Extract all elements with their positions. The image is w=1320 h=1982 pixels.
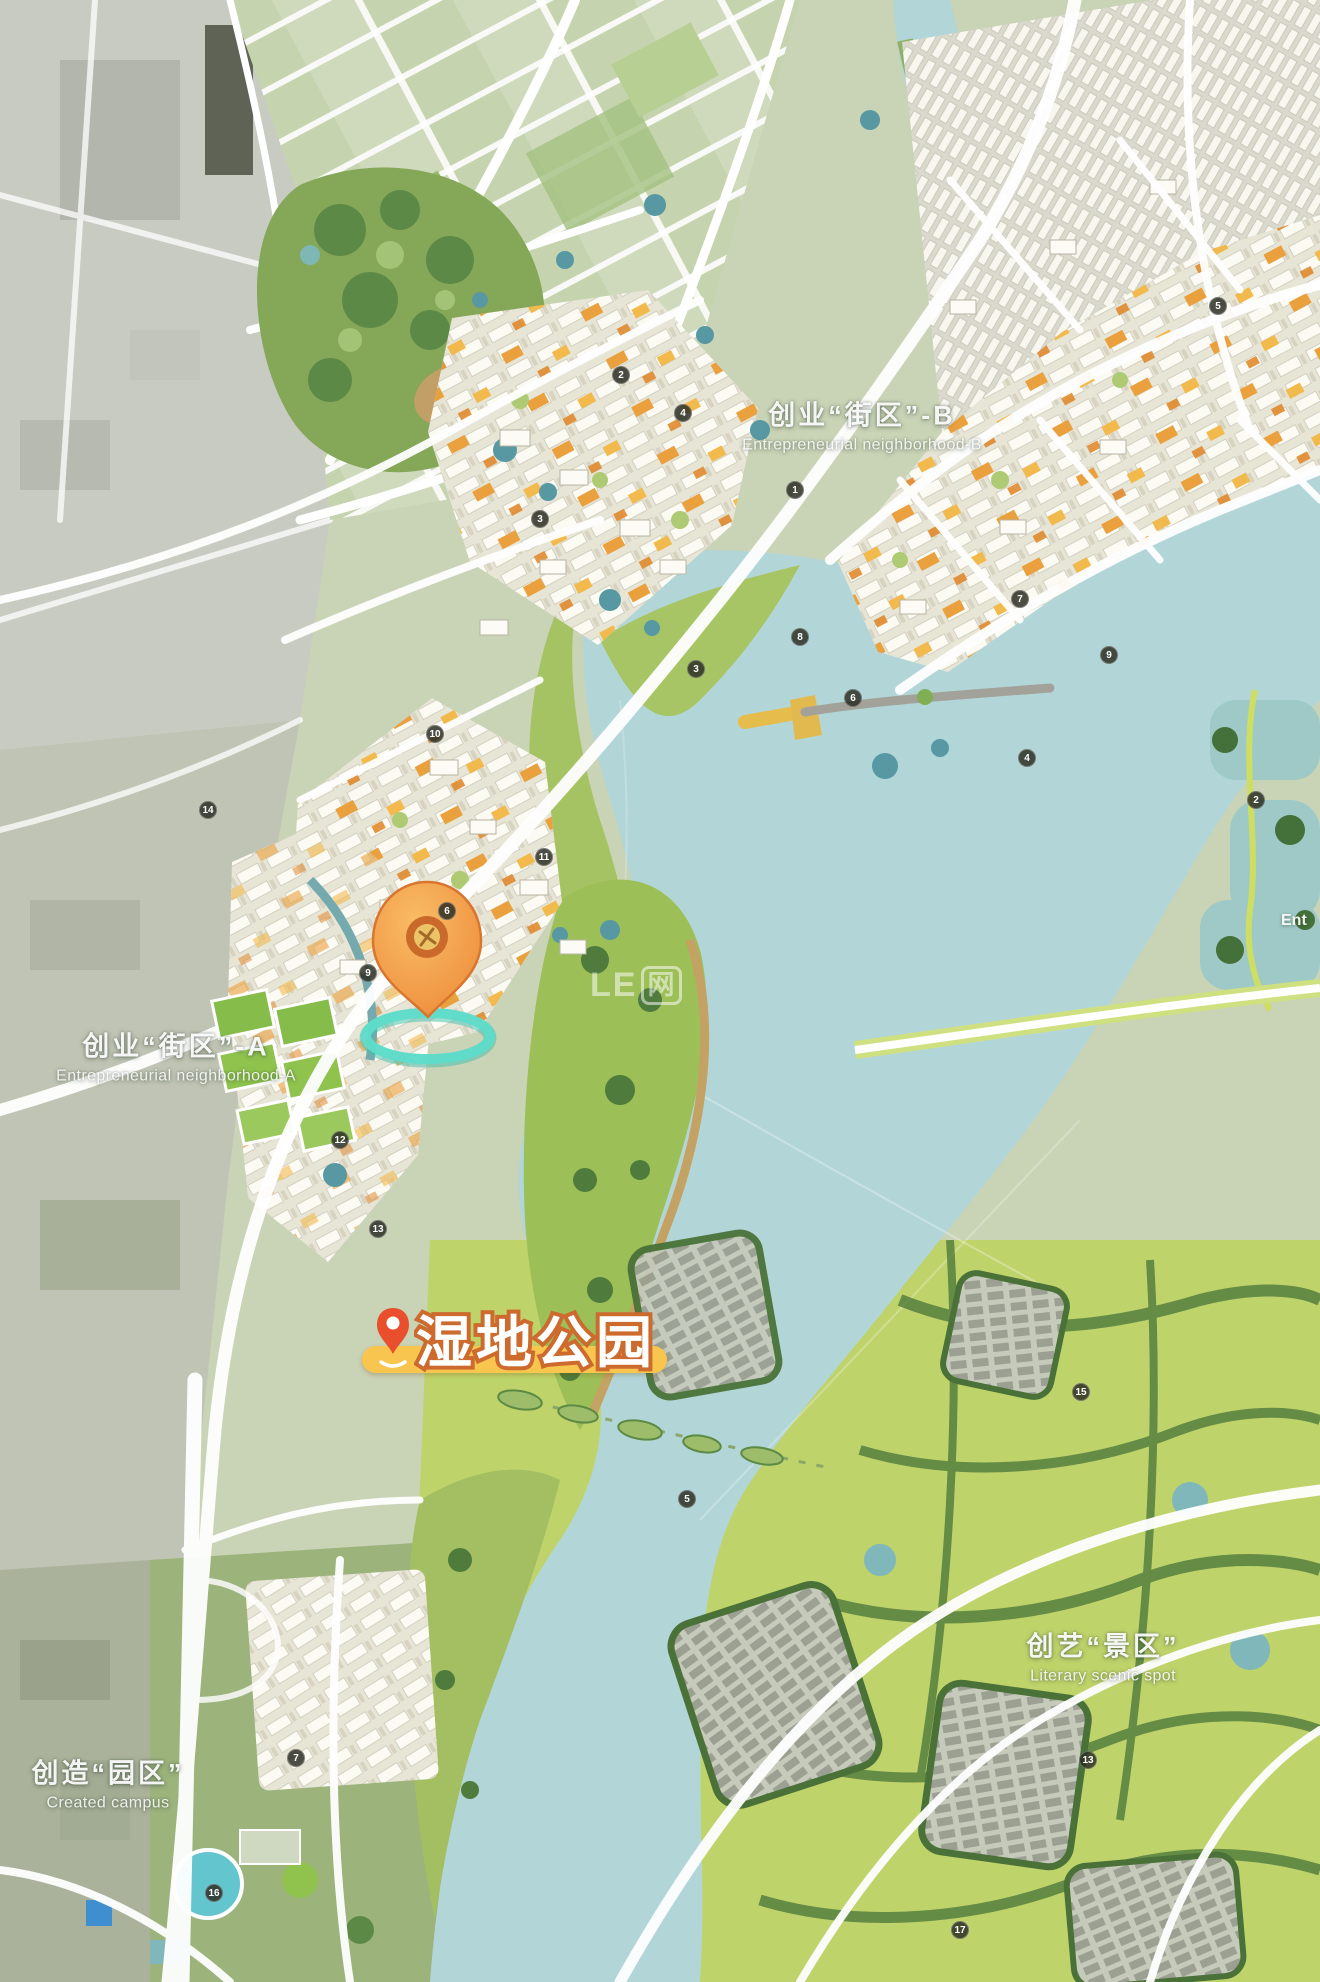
numbered-marker: 13 [1079, 1751, 1097, 1769]
district-label-campus: 创造“园区”Created campus [32, 1752, 185, 1813]
numbered-marker: 16 [205, 1884, 223, 1902]
numbered-marker: 5 [1209, 297, 1227, 315]
district-label-en: Literary scenic spot [1027, 1668, 1180, 1686]
poi-tag-text: 湿地公园 [416, 1311, 656, 1374]
district-label-zh: 创业“街区”-B [742, 394, 982, 433]
numbered-marker: 3 [687, 660, 705, 678]
numbered-marker: 8 [791, 628, 809, 646]
numbered-marker: 5 [678, 1490, 696, 1508]
numbered-marker: 9 [359, 964, 377, 982]
district-label-zh: 创业“街区”-A [56, 1025, 296, 1064]
watermark-latin: LE [590, 966, 637, 1005]
numbered-marker: 15 [1072, 1383, 1090, 1401]
numbered-marker: 13 [369, 1220, 387, 1238]
numbered-marker: 7 [287, 1749, 305, 1767]
numbered-marker: 11 [535, 848, 553, 866]
watermark: LE 网 [590, 966, 682, 1005]
numbered-marker: 7 [1011, 590, 1029, 608]
numbered-marker: 4 [674, 404, 692, 422]
poi-tag: 湿地公园 [362, 1298, 692, 1384]
district-label-zh: 创造“园区” [32, 1752, 185, 1791]
numbered-marker: 3 [531, 510, 549, 528]
numbered-marker: 2 [612, 366, 630, 384]
district-label-district-b: 创业“街区”-BEntrepreneurial neighborhood-B [742, 394, 982, 455]
watermark-cjk: 网 [641, 966, 682, 1004]
numbered-marker: 2 [1247, 791, 1265, 809]
district-label-district-a: 创业“街区”-AEntrepreneurial neighborhood-A [56, 1025, 296, 1086]
planning-map: 湿地公园 LE 网 Ent 创业“街区”-BEntrepreneurial ne… [0, 0, 1320, 1982]
numbered-marker: 10 [426, 725, 444, 743]
district-label-en: Entrepreneurial neighborhood-B [742, 437, 982, 455]
edge-partial-label: Ent [1281, 912, 1307, 930]
numbered-marker: 6 [438, 902, 456, 920]
numbered-marker: 4 [1018, 749, 1036, 767]
district-label-en: Created campus [32, 1795, 185, 1813]
poi-tag-pin-icon [374, 1306, 412, 1372]
halo-ring [366, 1013, 490, 1061]
numbered-marker: 6 [844, 689, 862, 707]
numbered-marker: 12 [331, 1131, 349, 1149]
numbered-marker: 9 [1100, 646, 1118, 664]
numbered-marker: 1 [786, 481, 804, 499]
numbered-marker: 14 [199, 801, 217, 819]
district-label-en: Entrepreneurial neighborhood-A [56, 1068, 296, 1086]
district-label-zh: 创艺“景区” [1027, 1625, 1180, 1664]
numbered-marker: 17 [951, 1921, 969, 1939]
district-label-scenic-area: 创艺“景区”Literary scenic spot [1027, 1625, 1180, 1686]
